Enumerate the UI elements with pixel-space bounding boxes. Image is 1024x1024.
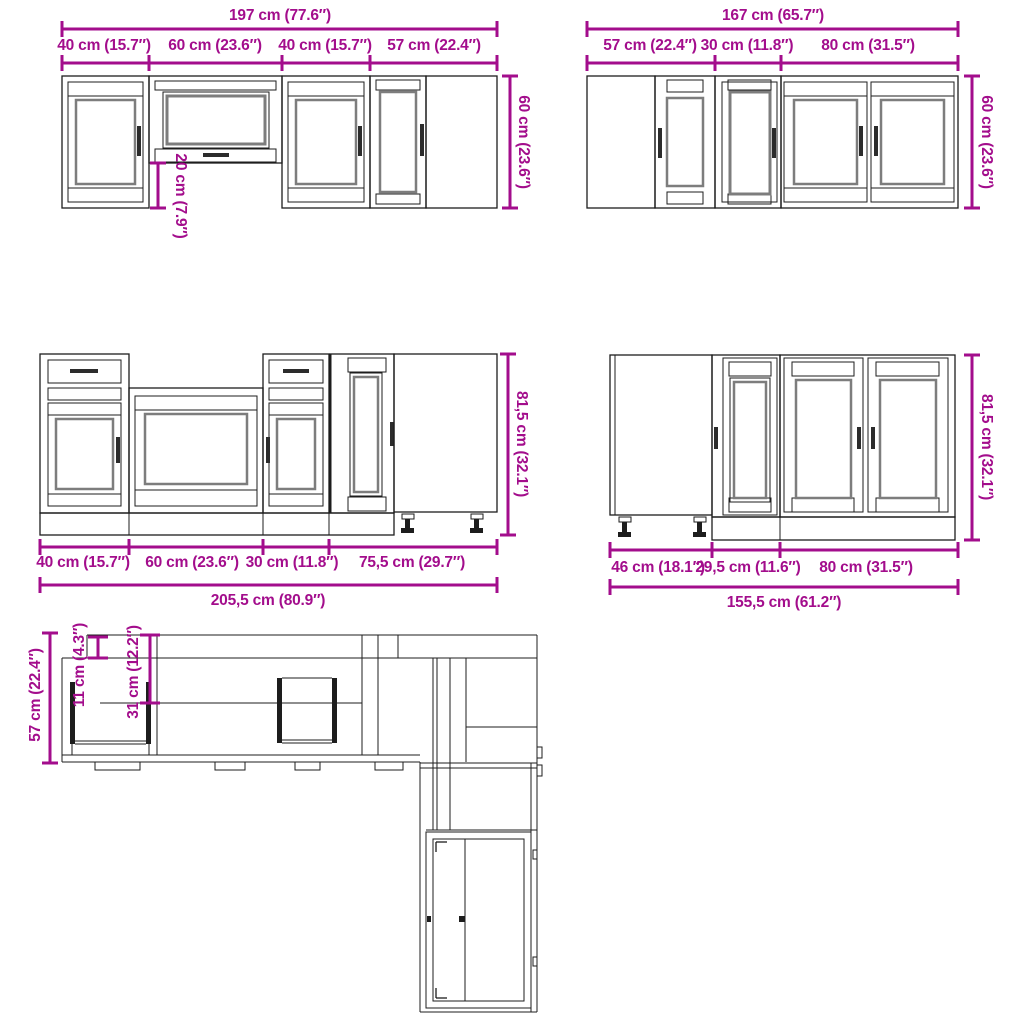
plan-handle-bump <box>533 957 537 966</box>
door-handle <box>358 126 362 156</box>
dim-label-wall-right-seg1: 57 cm (22.4″) <box>603 37 697 55</box>
dim-label-base-right-seg2: 29,5 cm (11.6″) <box>695 559 800 577</box>
plan-handle-bump <box>533 850 537 859</box>
dim-label-wall-left-seg3: 40 cm (15.7″) <box>278 37 372 55</box>
dim-label-base-right-total: 155,5 cm (61.2″) <box>727 594 842 612</box>
door-handle <box>857 427 861 449</box>
dim-label-plan-wall-depth: 31 cm (12.2″) <box>125 625 143 719</box>
plan-handle-bump <box>537 747 542 758</box>
plinth <box>40 513 394 535</box>
dim-label-base-left-total: 205,5 cm (80.9″) <box>211 592 326 610</box>
drawer-handle <box>70 369 98 373</box>
wall-run-left-cabinets <box>62 76 497 208</box>
adjustable-foot <box>618 517 631 537</box>
dim-label-glass-drop: 20 cm (7.9″) <box>171 153 189 238</box>
door-handle <box>772 128 776 158</box>
dim-label-base-right-height: 81,5 cm (32.1″) <box>977 394 995 500</box>
dim-label-wall-right-total: 167 cm (65.7″) <box>722 7 824 25</box>
plinth <box>712 517 955 540</box>
base-run-left-cabinets <box>40 354 497 535</box>
dim-label-wall-left-height: 60 cm (23.6″) <box>514 95 532 189</box>
plan-handle-bump <box>537 765 542 776</box>
dim-label-base-left-seg4: 75,5 cm (29.7″) <box>359 554 465 572</box>
hinge-mark <box>427 916 431 922</box>
cabinet-dimension-diagram: 197 cm (77.6″) 40 cm (15.7″) 60 cm (23.6… <box>0 0 1024 1024</box>
dim-label-plan-cornice: 11 cm (4.3″) <box>71 623 89 707</box>
wall-glass-cabinet <box>149 76 282 163</box>
corner-side-panel <box>426 76 497 208</box>
adjustable-foot <box>401 514 414 533</box>
base-corner-cabinet <box>610 355 712 515</box>
plan-drawer-tab <box>375 762 403 770</box>
door-handle <box>859 126 863 156</box>
door-handle <box>871 427 875 449</box>
corner-blind-panel <box>394 354 497 512</box>
dim-label-base-left-seg3: 30 cm (11.8″) <box>246 554 339 572</box>
dim-label-wall-right-height: 60 cm (23.6″) <box>977 95 995 189</box>
dim-label-plan-depth: 57 cm (22.4″) <box>27 648 45 742</box>
base-cabinet <box>129 388 263 513</box>
dim-label-base-right-seg1: 46 cm (18.1″) <box>611 559 705 577</box>
plan-drawer-tab <box>215 762 245 770</box>
plan-drawer-tab <box>295 762 320 770</box>
dim-label-wall-left-seg1: 40 cm (15.7″) <box>57 37 151 55</box>
adjustable-foot <box>693 517 706 537</box>
base-run-right-cabinets <box>610 355 955 540</box>
wall-glass-door <box>370 76 426 208</box>
drawer-handle <box>283 369 309 373</box>
plan-drawer-tab <box>95 762 140 770</box>
dim-label-wall-left-total: 197 cm (77.6″) <box>229 7 331 25</box>
dim-label-base-left-seg2: 60 cm (23.6″) <box>145 554 239 572</box>
dim-label-wall-left-seg2: 60 cm (23.6″) <box>168 37 262 55</box>
hinge-mark <box>459 916 465 922</box>
door-handle <box>137 126 141 156</box>
drawer-handle <box>203 153 229 157</box>
wall-cabinet <box>655 76 715 208</box>
plan-tall-door <box>426 832 531 1008</box>
dim-label-wall-right-seg3: 80 cm (31.5″) <box>821 37 915 55</box>
corner-side-panel <box>587 76 655 208</box>
door-handle <box>116 437 120 463</box>
wall-run-right-cabinets <box>587 76 958 208</box>
door-handle <box>714 427 718 449</box>
dim-label-wall-right-seg2: 30 cm (11.8″) <box>701 37 794 55</box>
dim-label-wall-left-seg4: 57 cm (22.4″) <box>387 37 481 55</box>
dim-label-base-left-height: 81,5 cm (32.1″) <box>512 391 530 497</box>
dim-label-base-left-seg1: 40 cm (15.7″) <box>36 554 130 572</box>
plan-open-cabinet <box>277 678 337 743</box>
door-handle <box>420 124 424 156</box>
door-handle <box>658 128 662 158</box>
dim-label-base-right-seg3: 80 cm (31.5″) <box>819 559 913 577</box>
diagram-line-art <box>0 0 1024 1024</box>
door-handle <box>266 437 270 463</box>
adjustable-foot <box>470 514 483 533</box>
door-handle <box>874 126 878 156</box>
